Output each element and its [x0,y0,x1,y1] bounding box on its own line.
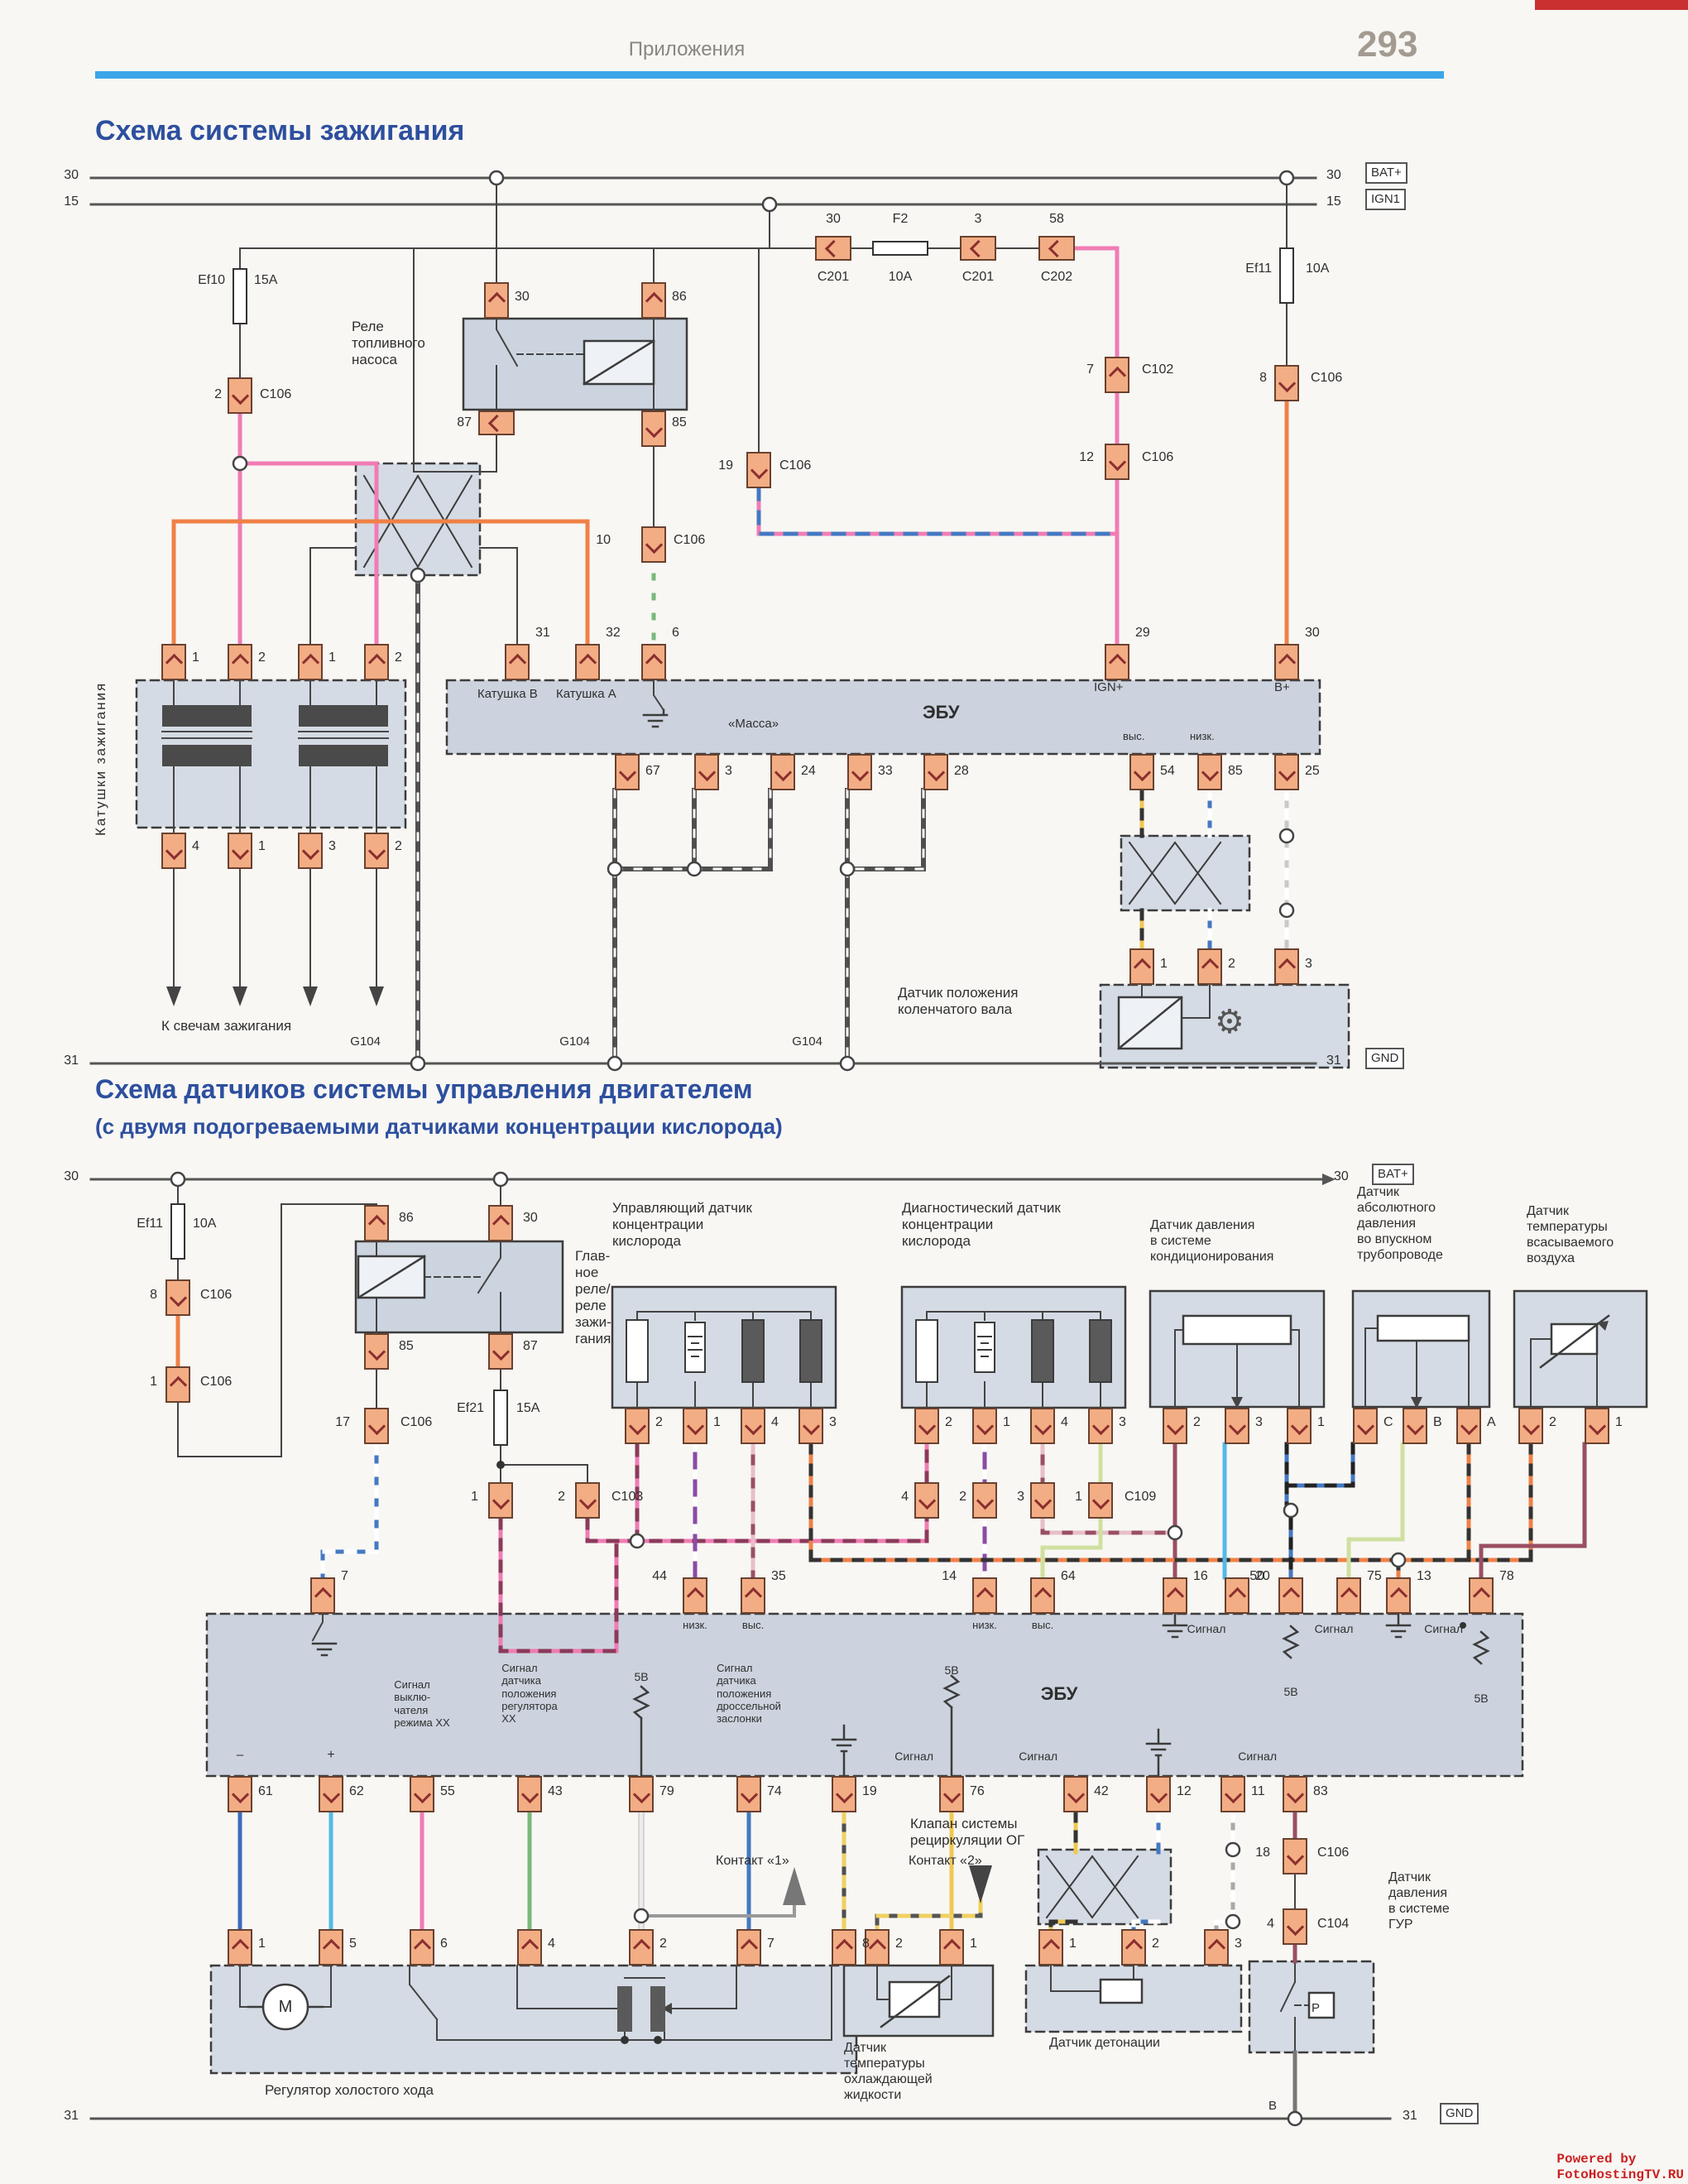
label: 31 [1326,1054,1341,1069]
breadcrumb: Приложения [629,38,745,61]
connector-pin [1469,1577,1494,1614]
label: 14 [942,1569,957,1585]
label: выс. [742,1619,764,1631]
connector-pin [310,1577,335,1614]
label: 5В [1474,1692,1488,1706]
label: 10 [596,533,611,549]
label: 1 [1075,1490,1082,1505]
label: 1 [1160,957,1168,972]
connector-pin [683,1408,707,1444]
connector-pin [641,526,666,563]
connector-pin [1030,1408,1055,1444]
label: 2 [945,1415,952,1431]
connector-pin [1121,1929,1146,1966]
label: 6 [672,626,679,641]
label: ЭБУ [1041,1683,1078,1705]
label: 44 [652,1569,667,1585]
label: Диагностический датчик концентрации кисл… [902,1200,1061,1250]
connector-pin [923,754,948,790]
connector-pin [1146,1776,1171,1812]
connector-pin [1585,1408,1609,1444]
label: 1 [258,839,266,855]
label: C102 [1142,362,1173,378]
label: 31 [535,626,550,641]
connector-pin [364,644,389,680]
label: 2 [395,839,402,855]
connector-pin [914,1408,939,1444]
connector-pin [798,1408,823,1444]
connector-pin [1063,1776,1088,1812]
label: C106 [200,1375,232,1390]
label: G104 [792,1034,822,1049]
label: 30 [523,1211,538,1226]
label: 50 [1249,1569,1264,1585]
label: 86 [399,1211,414,1226]
label: 3 [1119,1415,1126,1431]
label: 8 [150,1288,157,1303]
label: 4 [548,1937,555,1952]
label: 64 [1061,1569,1076,1585]
connector-pin [1038,236,1075,261]
connector-pin [1403,1408,1427,1444]
label: C [1383,1415,1393,1431]
label: Датчик положения коленчатого вала [898,985,1018,1018]
connector-pin [629,1929,654,1966]
label: 15A [254,273,277,289]
label: 2 [395,650,402,666]
rail-tag-bat2: BAT+ [1372,1164,1414,1185]
connector-pin [410,1776,434,1812]
label: – [237,1748,243,1763]
label: M [279,1998,293,2018]
label: 29 [1135,626,1150,641]
label: 61 [258,1784,273,1800]
connector-pin [641,644,666,680]
connector-pin [228,644,252,680]
label: 7 [767,1937,774,1952]
label: 1 [1317,1415,1325,1431]
label: Глав- ное реле/ реле зажи- гания [575,1248,611,1347]
label: 18 [1255,1846,1270,1861]
label: 13 [1417,1569,1431,1585]
label: P [1312,2001,1320,2016]
connector-pin [478,410,515,435]
label: 11 [1251,1784,1265,1800]
connector-pin [1283,1838,1307,1874]
label: Датчик температуры охлаждающей жидкости [844,2041,933,2104]
label: C201 [818,270,849,286]
label: 85 [1228,764,1243,780]
label: Датчик абсолютного давления во впускном … [1357,1185,1443,1263]
label: 8 [1259,371,1267,386]
label: 67 [645,764,660,780]
label: 4 [771,1415,779,1431]
connector-pin [1225,1408,1249,1444]
label: Контакт «2» [909,1854,982,1870]
label: К свечам зажигания [161,1018,291,1034]
label: (с двумя подогреваемыми датчиками концен… [95,1114,783,1140]
label: 83 [1313,1784,1328,1800]
label: G104 [559,1034,590,1049]
connector-pin [832,1776,856,1812]
label: 16 [1193,1569,1208,1585]
label: 3 [725,764,732,780]
connector-pin [228,1776,252,1812]
connector-pin [1518,1408,1543,1444]
connector-pin [484,282,509,319]
label: C104 [1317,1917,1349,1932]
label: Сигнал [1315,1622,1354,1636]
rail-tag-bat1: BAT+ [1365,162,1407,184]
label: 1 [328,650,336,666]
label: 19 [718,458,733,474]
connector-pin [319,1776,343,1812]
label: 58 [1049,212,1064,228]
label: Датчик детонации [1049,2036,1160,2052]
label: 24 [801,764,816,780]
connector-pin [1030,1482,1055,1519]
connector-pin [629,1776,654,1812]
label: C106 [200,1288,232,1303]
connector-pin [736,1929,761,1966]
label: Управляющий датчик концентрации кислород… [612,1200,752,1250]
label: 30 [64,1169,79,1185]
label: 10A [193,1217,216,1232]
label: C202 [1041,270,1072,286]
connector-pin [228,377,252,414]
label: 33 [878,764,893,780]
connector-pin [364,1408,389,1444]
label: A [1487,1415,1496,1431]
connector-pin [1274,644,1299,680]
label: 12 [1177,1784,1192,1800]
connector-pin [741,1408,765,1444]
connector-pin [741,1577,765,1614]
label: 31 [64,2109,79,2124]
connector-pin [298,644,323,680]
connector-pin [228,1929,252,1966]
label: 30 [64,168,79,184]
label: 3 [1235,1937,1242,1952]
rail-tag-gnd2: GND [1440,2103,1479,2124]
connector-pin [1088,1408,1113,1444]
label: 79 [659,1784,674,1800]
label: Схема системы зажигания [95,114,464,147]
rail-tag-gnd1: GND [1365,1048,1404,1069]
connector-pin [615,754,640,790]
label: C103 [611,1490,643,1505]
label: 30 [826,212,841,228]
label: 5В [634,1670,648,1684]
label: 2 [959,1490,966,1505]
page-number: 293 [1357,23,1417,66]
label: ЭБУ [923,702,960,723]
label: 87 [457,415,472,431]
connector-pin [1283,1908,1307,1945]
label: 3 [829,1415,837,1431]
connector-pin [1163,1408,1187,1444]
label: Ef10 [198,273,225,289]
label: 54 [1160,764,1175,780]
connector-pin [517,1929,542,1966]
connector-pin [770,754,795,790]
connector-pin [1386,1577,1411,1614]
label: B [1268,2099,1277,2114]
label: 1 [471,1490,478,1505]
connector-pin [575,644,600,680]
connector-pin [1197,754,1222,790]
label: 55 [440,1784,455,1800]
label: 15 [1326,194,1341,210]
connector-pin [972,1408,997,1444]
label: 5В [944,1663,958,1678]
label: Контакт «1» [716,1854,789,1870]
label: 76 [970,1784,985,1800]
label: 2 [1152,1937,1159,1952]
label: 3 [975,212,982,228]
connector-pin [1129,948,1154,985]
label: 4 [192,839,199,855]
scan-artifact-red-bar [1535,0,1688,10]
label: 10A [1306,262,1329,277]
connector-pin [641,410,666,447]
label: Катушка A [556,687,616,702]
connector-pin [641,282,666,319]
label: 1 [1615,1415,1623,1431]
connector-pin [1287,1408,1312,1444]
label: Клапан системы рециркуляции ОГ [910,1816,1024,1849]
connector-pin [694,754,719,790]
label: 1 [150,1375,157,1390]
label: 2 [895,1937,903,1952]
connector-pin [972,1577,997,1614]
label: 3 [328,839,336,855]
label: Сигнал [1187,1622,1226,1636]
connector-pin [1274,948,1299,985]
label: 8 [862,1937,870,1952]
connector-pin [364,833,389,869]
label: 1 [713,1415,721,1431]
connector-pin [1353,1408,1378,1444]
label: 4 [1061,1415,1068,1431]
connector-pin [746,452,771,488]
label: C106 [260,387,291,403]
connector-pin [1038,1929,1063,1966]
label: 2 [655,1415,663,1431]
label: 32 [606,626,621,641]
label: Сигнал выклю- чателя режима XX [394,1678,449,1729]
label: 5В [1283,1685,1297,1699]
label: 62 [349,1784,364,1800]
label: 30 [1326,168,1341,184]
label: Датчик температуры всасываемого воздуха [1527,1204,1614,1267]
connector-pin [319,1929,343,1966]
label: 2 [659,1937,667,1952]
label: 2 [1549,1415,1556,1431]
label: 25 [1305,764,1320,780]
label: ⚙ [1215,1003,1244,1042]
connector-pin [1030,1577,1055,1614]
connector-pin [488,1205,513,1241]
label: 1 [192,650,199,666]
manual-page: 293 BAT+ IGN1 GND BAT+ GND [0,0,1688,2184]
label: 35 [771,1569,786,1585]
label: G104 [350,1034,381,1049]
label: B [1433,1415,1442,1431]
label: 28 [954,764,969,780]
label: C201 [962,270,994,286]
connector-pin [1283,1776,1307,1812]
label: 10A [889,270,912,286]
label: Ef11 [1245,262,1272,277]
rail-tag-ign1: IGN1 [1365,189,1406,210]
label: C106 [1142,450,1173,466]
label: выс. [1123,730,1144,742]
connector-pin [1105,444,1129,480]
connector-pin [488,1333,513,1370]
label: Сигнал [894,1750,933,1764]
label: 5 [349,1937,357,1952]
connector-pin [1129,754,1154,790]
label: 17 [335,1415,350,1431]
label: 30 [1334,1169,1349,1185]
connector-pin [165,1279,190,1316]
label: низк. [1190,730,1215,742]
label: 85 [672,415,687,431]
connector-pin [815,236,851,261]
connector-pin [914,1482,939,1519]
connector-pin [736,1776,761,1812]
connector-pin [505,644,530,680]
label: + [327,1748,334,1764]
connector-pin [161,644,186,680]
connector-pin [847,754,872,790]
connector-pin [364,1205,389,1241]
label: 6 [440,1937,448,1952]
label: B+ [1274,680,1290,695]
label: Powered by FotoHostingTV.RU [1556,2152,1684,2183]
connector-pin [1220,1776,1245,1812]
label: 1 [1069,1937,1077,1952]
label: 3 [1305,957,1312,972]
label: 30 [515,290,530,305]
label: Ef11 [137,1217,163,1232]
connector-pin [972,1482,997,1519]
label: 42 [1094,1784,1109,1800]
label: Датчик давления в системе ГУР [1388,1870,1450,1933]
connector-pin [1204,1929,1229,1966]
label: C106 [1311,371,1342,386]
label: C106 [1317,1846,1349,1861]
label: Схема датчиков системы управления двигат… [95,1074,753,1106]
connector-pin [939,1929,964,1966]
label: Сигнал датчика положения регулятора XX [501,1662,558,1726]
label: «Масса» [728,717,779,732]
label: 31 [1403,2109,1417,2124]
connector-pin [364,1333,389,1370]
label: Реле топливного насоса [352,319,425,368]
label: низк. [683,1619,707,1631]
connector-pin [1225,1577,1249,1614]
connector-pin [1197,948,1222,985]
label: IGN+ [1094,680,1123,695]
connector-pin [410,1929,434,1966]
label: Катушка B [477,687,538,702]
label: Сигнал [1238,1750,1277,1764]
connector-pin [165,1366,190,1403]
label: Сигнал [1424,1622,1463,1636]
connector-pin [1088,1482,1113,1519]
connector-pin [832,1929,856,1966]
label: 1 [258,1937,266,1952]
label: C106 [400,1415,432,1431]
label: 7 [1086,362,1094,378]
label: 15A [516,1401,539,1417]
label: 74 [767,1784,782,1800]
label: 1 [1003,1415,1010,1431]
label: 19 [862,1784,877,1800]
label: 4 [901,1490,909,1505]
label: 86 [672,290,687,305]
label: 78 [1499,1569,1514,1585]
label: 3 [1017,1490,1024,1505]
connector-pin [625,1408,650,1444]
connector-pin [1278,1577,1303,1614]
label: 2 [258,650,266,666]
label: Регулятор холостого хода [265,2082,434,2099]
label: F2 [893,212,909,228]
label: 7 [341,1569,348,1585]
connector-pin [960,236,996,261]
connector-pin [1336,1577,1361,1614]
connector-pin [161,833,186,869]
label: Датчик давления в системе кондиционирова… [1150,1218,1273,1265]
label: 2 [214,387,222,403]
label: 85 [399,1339,414,1355]
label: 2 [1228,957,1235,972]
label: 30 [1305,626,1320,641]
label: 15 [64,194,79,210]
connector-pin [1274,365,1299,401]
connector-pin [1456,1408,1481,1444]
connector-pin [1274,754,1299,790]
label: C106 [674,533,705,549]
label: выс. [1032,1619,1053,1631]
connector-pin [517,1776,542,1812]
label: C106 [779,458,811,474]
label: 2 [558,1490,565,1505]
connector-pin [683,1577,707,1614]
connector-pin [1163,1577,1187,1614]
label: 1 [970,1937,977,1952]
connector-pin [488,1482,513,1519]
label: 43 [548,1784,563,1800]
label: Катушки зажигания [93,682,109,836]
label: 12 [1079,450,1094,466]
label: 4 [1267,1917,1274,1932]
connector-pin [1105,644,1129,680]
connector-pin [939,1776,964,1812]
connector-pin [1105,357,1129,393]
label: 3 [1255,1415,1263,1431]
label: 87 [523,1339,538,1355]
label: Сигнал датчика положения дроссельной зас… [717,1662,781,1726]
label: C109 [1125,1490,1156,1505]
connector-pin [298,833,323,869]
connector-pin [575,1482,600,1519]
label: 2 [1193,1415,1201,1431]
label: Ef21 [457,1401,484,1417]
